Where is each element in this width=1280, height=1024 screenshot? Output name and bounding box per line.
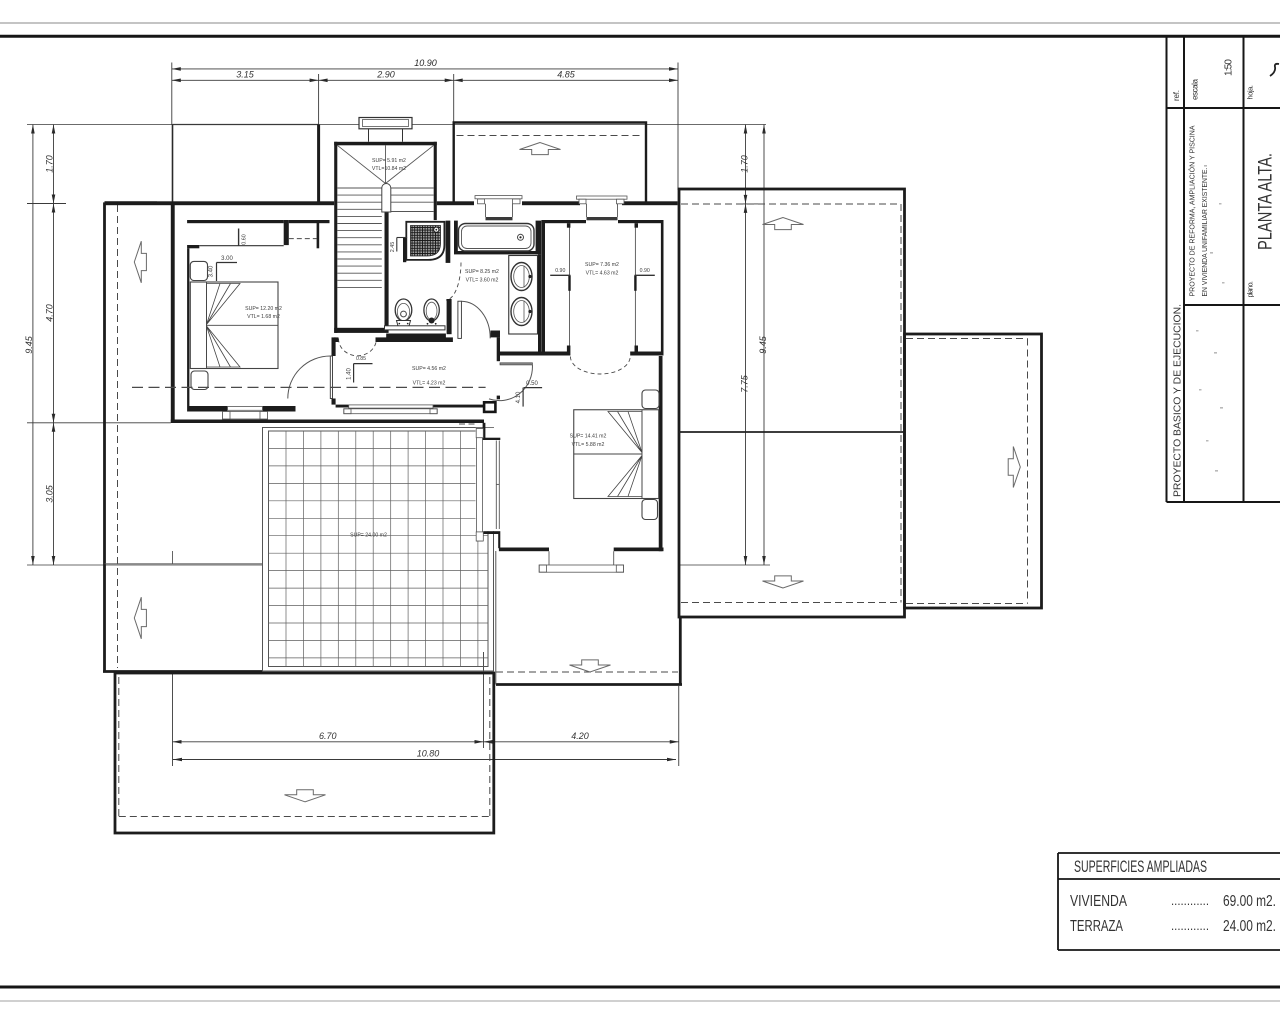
svg-text:VTL=10.84 m2: VTL=10.84 m2 <box>372 166 406 172</box>
svg-text:0.60: 0.60 <box>242 234 248 245</box>
svg-text:SUP= 8.25 m2: SUP= 8.25 m2 <box>465 269 499 275</box>
svg-text:escala: escala <box>1191 78 1200 100</box>
svg-text:3.40: 3.40 <box>209 265 215 277</box>
svg-text:4.20: 4.20 <box>571 731 589 741</box>
svg-text:24.00 m2.: 24.00 m2. <box>1223 918 1276 935</box>
svg-text:hoja.: hoja. <box>1246 85 1255 100</box>
svg-text:SUP= 4.56 m2: SUP= 4.56 m2 <box>412 366 446 372</box>
svg-text:1.40: 1.40 <box>347 368 353 380</box>
svg-text:1.70: 1.70 <box>45 155 55 173</box>
svg-text:9.45: 9.45 <box>24 335 34 354</box>
svg-text:0.90: 0.90 <box>640 268 650 274</box>
svg-text:SUP= 5.91 m2: SUP= 5.91 m2 <box>372 158 406 164</box>
svg-text:VTL= 5.88 m2: VTL= 5.88 m2 <box>572 442 605 448</box>
svg-text:VIVIENDA: VIVIENDA <box>1070 893 1128 910</box>
svg-text:VTL= 1.68 m2: VTL= 1.68 m2 <box>247 314 280 320</box>
svg-text:SUPERFICIES AMPLIADAS: SUPERFICIES AMPLIADAS <box>1074 858 1207 876</box>
svg-text:7.75: 7.75 <box>740 374 750 393</box>
svg-text:............: ............ <box>1171 918 1209 933</box>
svg-text:2.45: 2.45 <box>390 242 396 253</box>
svg-text:3.15: 3.15 <box>236 70 255 80</box>
svg-text:4.70: 4.70 <box>45 304 55 322</box>
svg-text:69.00 m2.: 69.00 m2. <box>1223 893 1276 910</box>
svg-text:plano.: plano. <box>1246 281 1255 298</box>
svg-text:3.05: 3.05 <box>45 484 55 503</box>
svg-text:VTL= 4.63 m2: VTL= 4.63 m2 <box>586 271 619 277</box>
svg-text:SUP= 7.36 m2: SUP= 7.36 m2 <box>585 262 619 268</box>
svg-text:10.90: 10.90 <box>414 58 437 68</box>
svg-text:SUP= 12.20 m2: SUP= 12.20 m2 <box>245 306 282 312</box>
svg-text:0.85: 0.85 <box>356 356 366 362</box>
svg-text:SUP= 24.00 m2: SUP= 24.00 m2 <box>350 533 387 539</box>
svg-text:1:50: 1:50 <box>1224 59 1235 76</box>
svg-text:6.70: 6.70 <box>319 731 337 741</box>
svg-text:............: ............ <box>1171 893 1209 908</box>
svg-text:SUP= 14.41 m2: SUP= 14.41 m2 <box>570 434 607 440</box>
svg-text:3.00: 3.00 <box>221 256 233 262</box>
svg-text:10.80: 10.80 <box>417 749 440 759</box>
svg-text:PROYECTO BASICO Y DE EJECU: PROYECTO BASICO Y DE EJECUCION. <box>1172 304 1184 497</box>
svg-text:VTL= 3.60 m2: VTL= 3.60 m2 <box>466 278 499 284</box>
svg-text:EN VIVIENDA UNIFAMILIAR EXISTE: EN VIVIENDA UNIFAMILIAR EXISTENTE. <box>1200 168 1209 297</box>
svg-text:1.70: 1.70 <box>740 155 750 173</box>
svg-text:ref.: ref. <box>1172 90 1181 101</box>
svg-text:0.90: 0.90 <box>555 268 565 274</box>
svg-text:4.85: 4.85 <box>557 70 576 80</box>
svg-text:0.50: 0.50 <box>526 381 538 387</box>
svg-text:4.10: 4.10 <box>516 391 522 403</box>
svg-text:PLANTA ALTA.: PLANTA ALTA. <box>1255 153 1277 250</box>
svg-text:2.90: 2.90 <box>376 70 395 80</box>
svg-text:VTL= 4.23 m2: VTL= 4.23 m2 <box>413 381 446 387</box>
svg-text:9.45: 9.45 <box>758 335 768 354</box>
svg-text:TERRAZA: TERRAZA <box>1070 918 1123 935</box>
svg-text:PROYECTO DE REFORMA, AMPLIA: PROYECTO DE REFORMA, AMPLIACIÓN Y PISCIN… <box>1188 125 1197 297</box>
